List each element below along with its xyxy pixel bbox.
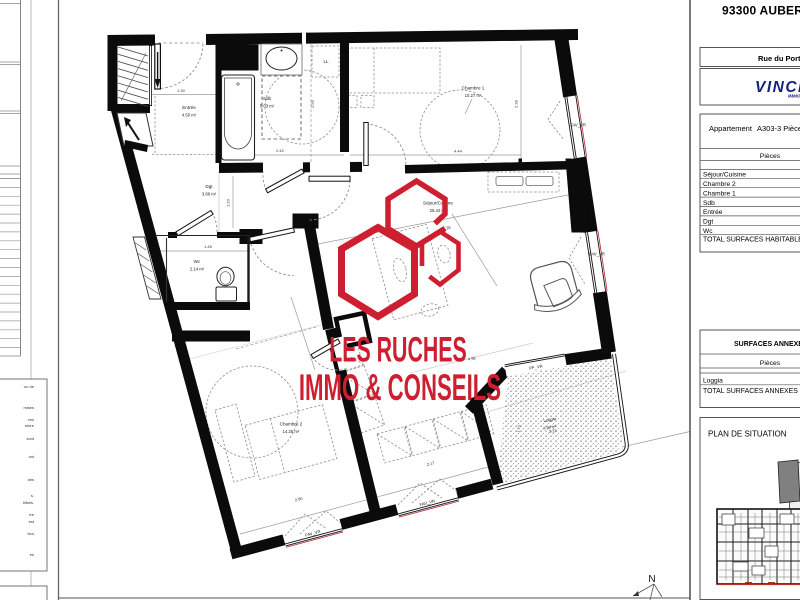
- svg-text:Séjour/Cuisine: Séjour/Cuisine: [703, 172, 746, 179]
- svg-text:est: est: [29, 519, 35, 524]
- svg-text:tre: tre: [29, 512, 34, 517]
- svg-text:Loggia: Loggia: [703, 378, 723, 385]
- svg-text:93300 AUBERVILLIERS: 93300 AUBERVILLIERS: [722, 4, 800, 18]
- svg-text:4.44: 4.44: [454, 149, 463, 154]
- svg-text:PLAN DE SITUATION: PLAN DE SITUATION: [708, 430, 787, 439]
- svg-text:1.45: 1.45: [204, 244, 213, 249]
- svg-text:FAV_VR: FAV_VR: [570, 123, 586, 128]
- svg-text:Appartement: Appartement: [709, 124, 753, 133]
- svg-text:TOTAL SURFACES HABITABLES: TOTAL SURFACES HABITABLES: [703, 237, 800, 244]
- svg-text:4.50 m²: 4.50 m²: [182, 113, 197, 118]
- svg-text:sont: sont: [26, 436, 34, 441]
- svg-text:Séjour/Cuisine: Séjour/Cuisine: [423, 201, 453, 206]
- svg-text:Chambre 2: Chambre 2: [703, 181, 736, 188]
- svg-text:Sdb: Sdb: [263, 96, 272, 101]
- svg-text:1.20: 1.20: [226, 198, 231, 207]
- svg-text:tion: tion: [28, 531, 34, 536]
- svg-text:Wc: Wc: [703, 228, 713, 235]
- svg-text:2.42: 2.42: [276, 148, 285, 153]
- svg-text:Entrée: Entrée: [182, 105, 196, 110]
- svg-text:5.03 m²: 5.03 m²: [260, 104, 275, 109]
- svg-text:' ou de: ' ou de: [22, 384, 35, 389]
- svg-text:TOTAL SURFACES ANNEXES: TOTAL SURFACES ANNEXES: [703, 388, 798, 395]
- svg-text:1.30: 1.30: [177, 88, 186, 93]
- svg-text:Rue du Port: Rue du Port: [758, 54, 800, 63]
- svg-text:3.86 m²: 3.86 m²: [202, 192, 217, 197]
- svg-text:Dgt: Dgt: [205, 184, 213, 189]
- svg-text:tilisés.: tilisés.: [23, 500, 34, 505]
- svg-text:10.27 m²: 10.27 m²: [465, 93, 482, 98]
- svg-text:2.14 m²: 2.14 m²: [190, 267, 205, 272]
- svg-text:Pièces: Pièces: [760, 153, 781, 160]
- svg-text:es: es: [30, 552, 34, 557]
- svg-text:2.39: 2.39: [514, 99, 519, 108]
- svg-text:A303-3 Pièce(s): A303-3 Pièce(s): [757, 124, 800, 133]
- svg-text:ves: ves: [28, 417, 34, 422]
- svg-text:Chambre 1: Chambre 1: [462, 86, 485, 91]
- svg-text:SURFACES ANNEXES: SURFACES ANNEXES: [734, 341, 800, 348]
- svg-text:LL: LL: [323, 59, 329, 64]
- svg-text:FAV_VR: FAV_VR: [589, 252, 605, 257]
- svg-text:N: N: [648, 574, 655, 585]
- svg-text:mises: mises: [24, 405, 34, 410]
- svg-text:2.59: 2.59: [310, 99, 315, 108]
- svg-text:Chambre 2: Chambre 2: [280, 422, 303, 427]
- svg-text:IMMOBILIER: IMMOBILIER: [788, 94, 800, 99]
- svg-text:LES RUCHES: LES RUCHES: [329, 331, 467, 370]
- svg-text:Pièces: Pièces: [760, 360, 781, 367]
- svg-text:14.25 m²: 14.25 m²: [283, 429, 300, 434]
- svg-text:Wc: Wc: [194, 259, 201, 264]
- svg-text:Chambre 1: Chambre 1: [703, 190, 736, 197]
- svg-text:Dgt: Dgt: [703, 219, 713, 226]
- svg-text:Entrée: Entrée: [703, 209, 723, 216]
- svg-text:mbre: mbre: [25, 423, 35, 428]
- svg-text:s,: s,: [31, 493, 34, 498]
- svg-text:ont: ont: [28, 454, 34, 459]
- svg-text:des: des: [28, 477, 34, 482]
- svg-text:IMMO & CONSEILS: IMMO & CONSEILS: [299, 367, 501, 408]
- svg-text:Sdb: Sdb: [703, 200, 715, 207]
